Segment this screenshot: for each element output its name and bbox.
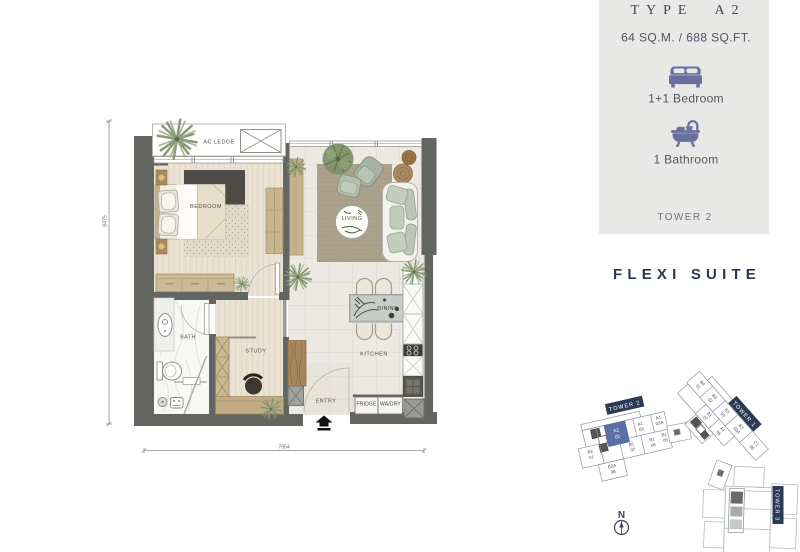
svg-text:64 SQ.M. / 688 SQ.FT.: 64 SQ.M. / 688 SQ.FT. xyxy=(621,31,751,45)
svg-text:TOWER 2: TOWER 2 xyxy=(657,212,712,223)
svg-text:KITCHEN: KITCHEN xyxy=(360,352,388,358)
svg-text:N: N xyxy=(618,510,625,521)
svg-text:DINING: DINING xyxy=(377,306,398,312)
svg-text:1+1 Bedroom: 1+1 Bedroom xyxy=(648,92,724,106)
svg-text:FRIDGE: FRIDGE xyxy=(356,402,377,408)
svg-text:1 Bathroom: 1 Bathroom xyxy=(653,153,718,167)
svg-text:TYPE A2: TYPE A2 xyxy=(630,3,745,18)
svg-text:ENTRY: ENTRY xyxy=(316,399,337,405)
svg-text:TOWER 3: TOWER 3 xyxy=(774,489,780,521)
svg-text:7954: 7954 xyxy=(278,445,290,451)
svg-text:BEDROOM: BEDROOM xyxy=(190,204,222,210)
svg-text:8475: 8475 xyxy=(103,215,109,227)
svg-text:FLEXI SUITE: FLEXI SUITE xyxy=(613,266,761,283)
svg-text:AC LEDGE: AC LEDGE xyxy=(203,140,234,146)
svg-text:WA/DRY: WA/DRY xyxy=(380,402,401,408)
svg-text:LIVING: LIVING xyxy=(341,216,362,222)
svg-text:STUDY: STUDY xyxy=(245,349,266,355)
svg-text:BATH: BATH xyxy=(180,335,195,341)
